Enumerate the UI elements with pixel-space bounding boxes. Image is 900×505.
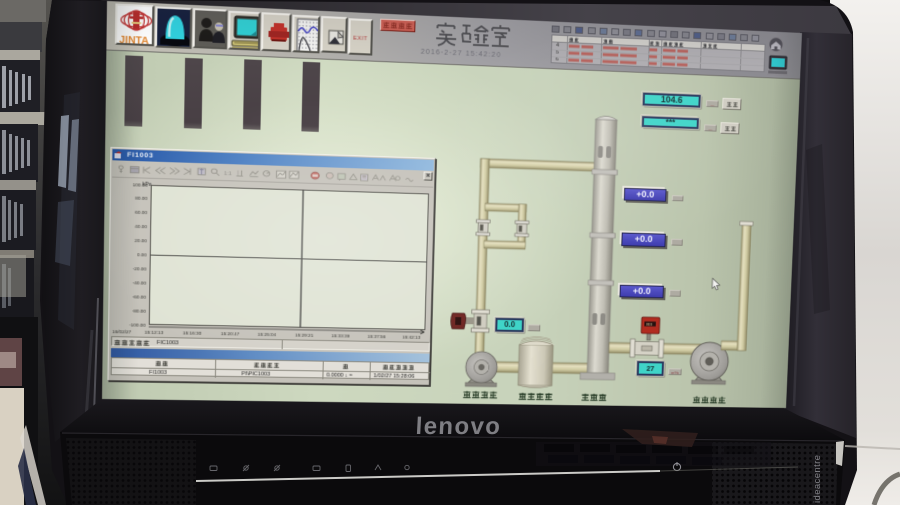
svg-text:1:1: 1:1: [224, 171, 232, 177]
svg-text:88.8: 88.8: [646, 323, 652, 327]
svg-text:ideacentre: ideacentre: [812, 455, 823, 503]
